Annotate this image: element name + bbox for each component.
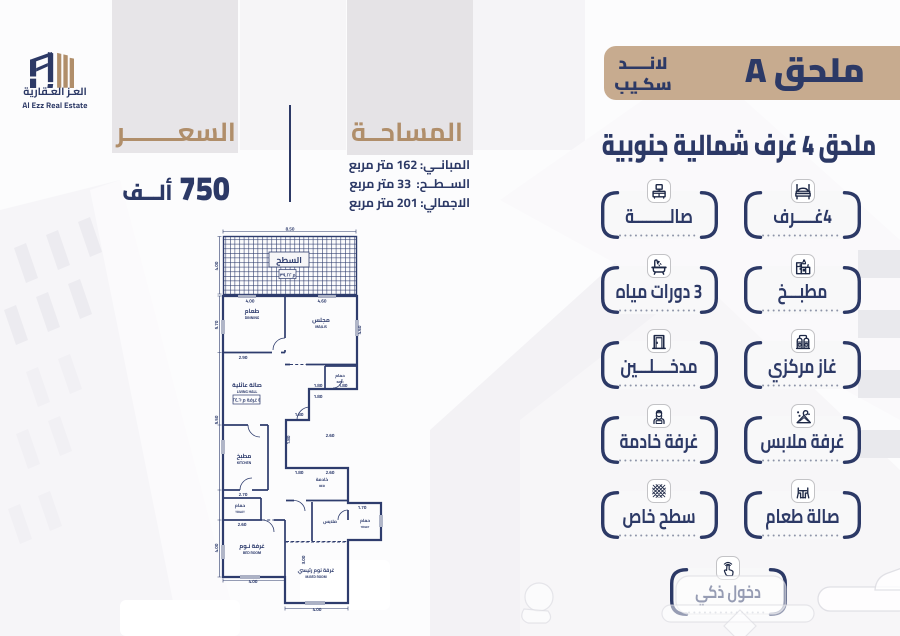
svg-text:السطح: السطح xyxy=(276,252,302,268)
svg-text:TOILET: TOILET xyxy=(235,509,245,515)
svg-text:2.90: 2.90 xyxy=(239,353,248,362)
svg-text:٤ غرفة م٢٤,٦٠: ٤ غرفة م٢٤,٦٠ xyxy=(233,396,261,405)
svg-text:8.50: 8.50 xyxy=(286,226,295,234)
svg-text:1.70: 1.70 xyxy=(358,503,367,512)
svg-text:1.80: 1.80 xyxy=(295,410,304,419)
svg-text:4.00: 4.00 xyxy=(246,297,255,306)
svg-text:2.60: 2.60 xyxy=(238,520,247,529)
svg-text:1.80: 1.80 xyxy=(314,392,323,401)
svg-text:ملابس: ملابس xyxy=(323,517,337,526)
svg-text:1.80: 1.80 xyxy=(339,381,348,390)
svg-text:4.60: 4.60 xyxy=(318,297,327,306)
svg-text:MAJLIS: MAJLIS xyxy=(315,324,327,331)
svg-text:KITCHEN: KITCHEN xyxy=(237,460,252,467)
svg-text:2.70: 2.70 xyxy=(239,490,248,499)
svg-text:4.00: 4.00 xyxy=(212,261,221,270)
svg-text:M.BED ROOM: M.BED ROOM xyxy=(305,574,326,581)
svg-text:1.80: 1.80 xyxy=(314,381,323,390)
svg-text:2.60: 2.60 xyxy=(326,468,335,477)
svg-text:م ٣٩,٢٢: م ٣٩,٢٢ xyxy=(280,271,296,280)
svg-text:4.00: 4.00 xyxy=(313,605,322,614)
svg-text:DINNING: DINNING xyxy=(245,315,260,322)
svg-text:TOILET: TOILET xyxy=(361,524,370,530)
svg-text:4.00: 4.00 xyxy=(249,577,258,586)
svg-text:4.60: 4.60 xyxy=(355,325,364,334)
svg-text:1.80: 1.80 xyxy=(284,435,293,444)
svg-text:BED: BED xyxy=(319,483,325,489)
svg-text:2.60: 2.60 xyxy=(326,431,335,440)
svg-text:BED ROOM: BED ROOM xyxy=(243,550,261,557)
svg-text:3.00: 3.00 xyxy=(299,555,308,564)
svg-text:1.80: 1.80 xyxy=(295,468,304,477)
